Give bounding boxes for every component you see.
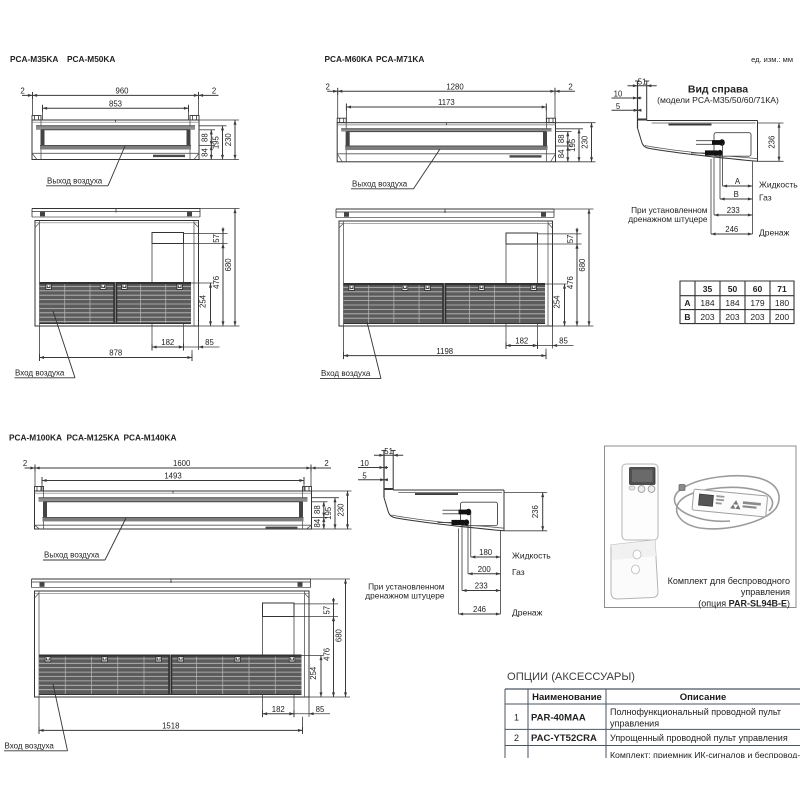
svg-text:2: 2 (212, 87, 216, 96)
svg-text:88: 88 (313, 505, 322, 514)
svg-text:2: 2 (514, 733, 519, 743)
svg-text:200: 200 (775, 312, 789, 322)
svg-text:PAR-40MAA: PAR-40MAA (531, 713, 586, 724)
svg-text:Жидкость: Жидкость (512, 551, 551, 561)
svg-text:182: 182 (515, 337, 528, 346)
svg-text:Жидкость: Жидкость (759, 180, 798, 190)
svg-text:960: 960 (116, 87, 130, 96)
svg-text:254: 254 (553, 295, 562, 309)
svg-text:84: 84 (557, 149, 566, 158)
svg-text:PCA-M50KA: PCA-M50KA (67, 54, 115, 64)
svg-text:Вход воздуха: Вход воздуха (5, 742, 55, 751)
svg-text:476: 476 (566, 276, 575, 289)
svg-text:A: A (735, 177, 741, 186)
svg-text:184: 184 (725, 298, 739, 308)
svg-text:10: 10 (614, 90, 623, 99)
svg-text:680: 680 (224, 258, 233, 272)
svg-text:84: 84 (200, 148, 209, 157)
svg-text:2: 2 (23, 459, 27, 468)
svg-text:Вход воздуха: Вход воздуха (321, 369, 371, 378)
svg-text:195: 195 (568, 138, 577, 152)
svg-text:10: 10 (360, 459, 369, 468)
svg-text:Упрощенный проводной пульт упр: Упрощенный проводной пульт управления (610, 733, 788, 743)
svg-text:PCA-M71KA: PCA-M71KA (376, 54, 424, 64)
svg-text:57: 57 (212, 234, 221, 243)
svg-text:233: 233 (475, 582, 488, 591)
svg-text:5: 5 (616, 102, 621, 111)
svg-text:57: 57 (323, 606, 332, 615)
svg-text:2: 2 (568, 83, 572, 92)
svg-text:Вход воздуха: Вход воздуха (15, 369, 65, 378)
svg-text:A: A (684, 298, 690, 308)
svg-text:236: 236 (768, 136, 777, 149)
svg-text:84: 84 (313, 518, 322, 527)
svg-text:680: 680 (335, 628, 344, 642)
svg-text:1198: 1198 (436, 347, 453, 356)
svg-text:35: 35 (703, 284, 713, 294)
svg-text:85: 85 (559, 337, 568, 346)
svg-text:1: 1 (514, 713, 519, 723)
svg-text:1518: 1518 (162, 722, 179, 731)
svg-text:51: 51 (638, 78, 647, 87)
svg-text:2: 2 (326, 83, 330, 92)
svg-text:1173: 1173 (438, 98, 455, 107)
svg-text:184: 184 (700, 298, 714, 308)
svg-text:B: B (734, 190, 739, 199)
svg-text:230: 230 (224, 133, 233, 147)
svg-text:PCA-M35KA: PCA-M35KA (10, 54, 58, 64)
svg-text:PCA-M60KA: PCA-M60KA (325, 54, 373, 64)
svg-text:878: 878 (109, 349, 122, 358)
svg-text:ед. изм.: мм: ед. изм.: мм (751, 55, 793, 64)
svg-text:853: 853 (109, 99, 122, 108)
svg-text:179: 179 (750, 298, 764, 308)
svg-text:1280: 1280 (446, 83, 464, 92)
svg-text:182: 182 (272, 705, 285, 714)
svg-text:88: 88 (557, 134, 566, 143)
svg-text:230: 230 (337, 503, 346, 517)
svg-text:Выход воздуха: Выход воздуха (352, 180, 408, 189)
svg-text:203: 203 (750, 312, 764, 322)
svg-text:Дренаж: Дренаж (759, 228, 790, 238)
svg-text:254: 254 (309, 666, 318, 680)
svg-text:230: 230 (581, 135, 590, 149)
svg-text:85: 85 (316, 705, 325, 714)
svg-text:Дренаж: Дренаж (512, 608, 543, 618)
svg-text:60: 60 (753, 284, 763, 294)
svg-text:2: 2 (324, 459, 328, 468)
svg-text:57: 57 (566, 235, 575, 244)
svg-text:PAC-YT52CRA: PAC-YT52CRA (531, 733, 597, 744)
svg-text:2: 2 (20, 87, 24, 96)
svg-text:Описание: Описание (680, 692, 727, 703)
svg-text:195: 195 (212, 135, 221, 149)
svg-text:PCA-M125KA: PCA-M125KA (67, 433, 120, 443)
svg-text:180: 180 (479, 548, 493, 557)
svg-text:PCA-M140KA: PCA-M140KA (124, 433, 177, 443)
svg-text:71: 71 (777, 284, 787, 294)
svg-text:(опция PAR-SL94B-E): (опция PAR-SL94B-E) (698, 599, 790, 609)
svg-text:203: 203 (700, 312, 714, 322)
svg-text:1493: 1493 (164, 472, 181, 481)
svg-text:476: 476 (323, 648, 332, 661)
svg-text:Выход воздуха: Выход воздуха (47, 177, 103, 186)
svg-text:236: 236 (531, 505, 540, 518)
svg-text:180: 180 (775, 298, 789, 308)
svg-text:Газ: Газ (512, 567, 525, 577)
svg-text:ОПЦИИ (АКСЕССУАРЫ): ОПЦИИ (АКСЕССУАРЫ) (507, 671, 635, 683)
svg-text:Вид справа: Вид справа (688, 84, 748, 96)
svg-text:203: 203 (725, 312, 739, 322)
svg-text:680: 680 (578, 258, 587, 272)
svg-text:254: 254 (199, 294, 208, 308)
svg-text:233: 233 (727, 206, 740, 215)
svg-text:PCA-M100KA: PCA-M100KA (9, 433, 62, 443)
svg-text:1600: 1600 (173, 459, 191, 468)
svg-text:(модели PCA-M35/50/60/71КА): (модели PCA-M35/50/60/71КА) (657, 95, 779, 105)
svg-text:Газ: Газ (759, 193, 772, 203)
svg-text:дренажном штуцере: дренажном штуцере (628, 214, 708, 224)
svg-text:Выход воздуха: Выход воздуха (44, 551, 100, 560)
svg-text:Комплект для беспроводного: Комплект для беспроводного (668, 576, 790, 586)
svg-text:85: 85 (205, 338, 214, 347)
svg-text:5: 5 (362, 471, 367, 480)
svg-text:200: 200 (478, 565, 492, 574)
svg-text:управления: управления (610, 719, 659, 729)
svg-text:182: 182 (161, 338, 174, 347)
svg-text:B: B (684, 312, 690, 322)
svg-text:246: 246 (473, 605, 486, 614)
svg-text:Наименование: Наименование (532, 692, 602, 703)
svg-text:50: 50 (728, 284, 738, 294)
svg-text:246: 246 (725, 225, 738, 234)
svg-text:управления: управления (741, 587, 790, 597)
svg-text:476: 476 (212, 276, 221, 289)
svg-text:88: 88 (200, 133, 209, 142)
svg-text:51: 51 (384, 447, 393, 456)
svg-text:195: 195 (324, 506, 333, 520)
svg-text:Полнофункциональный проводной: Полнофункциональный проводной пульт (610, 707, 781, 717)
svg-text:дренажном штуцере: дренажном штуцере (365, 591, 445, 601)
